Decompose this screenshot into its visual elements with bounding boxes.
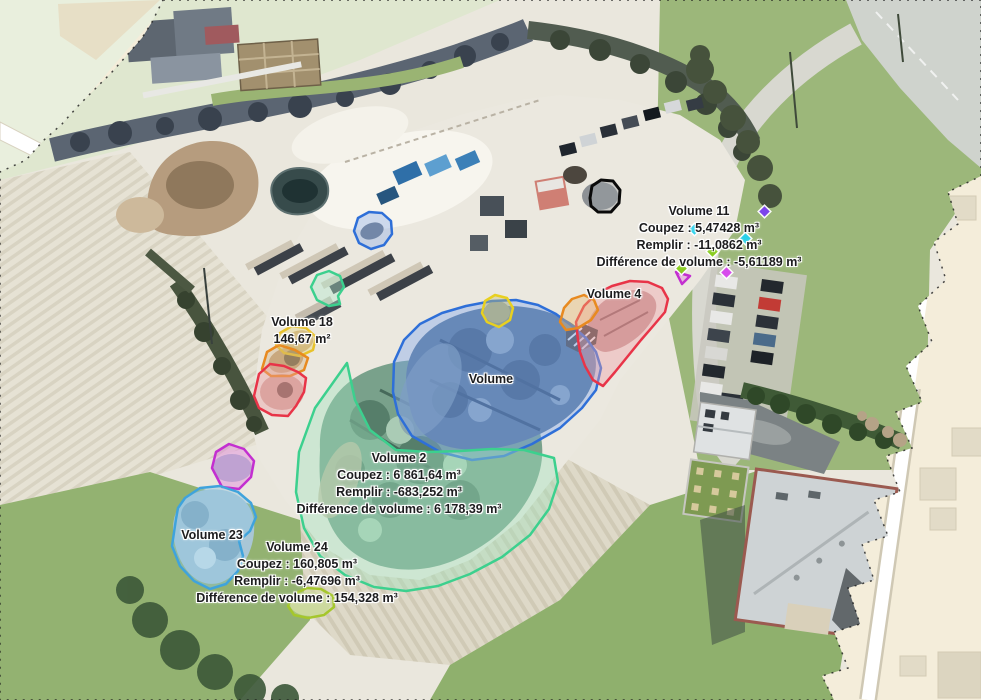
orthophoto-scene: [0, 0, 981, 700]
black-polygon[interactable]: [590, 180, 620, 212]
map-canvas[interactable]: Volume 11 Coupez : 5,47428 m³ Remplir : …: [0, 0, 981, 700]
small-blue-polygon[interactable]: [354, 212, 392, 249]
yellow-small-polygon[interactable]: [482, 295, 513, 327]
chartreuse-polygon[interactable]: [288, 588, 334, 618]
